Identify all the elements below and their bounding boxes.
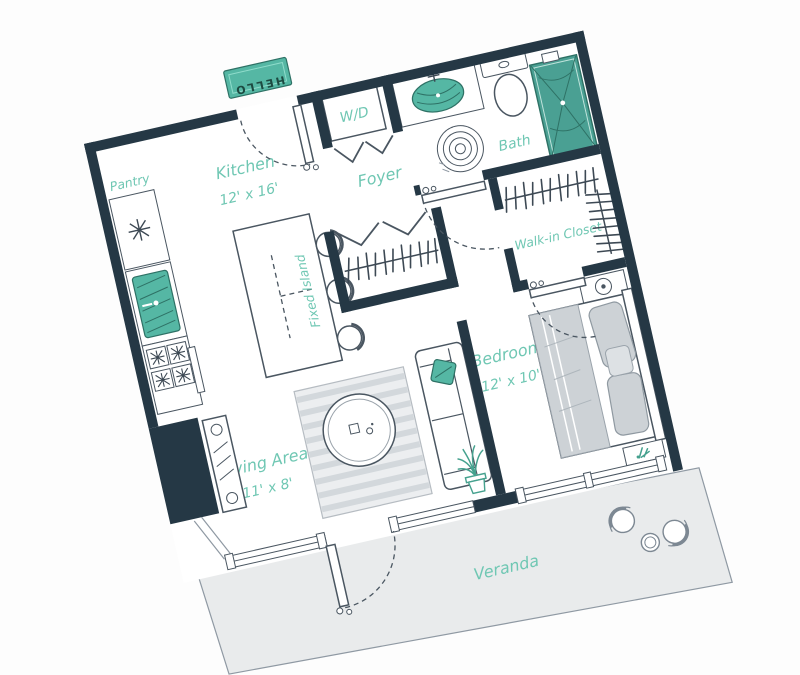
doormat-icon: HELLO [223, 57, 292, 98]
floorplan-canvas: Veranda Kitchen 12' x 16' Pantry [0, 0, 800, 675]
throw-pillow-icon [431, 359, 457, 385]
floorplan: Veranda Kitchen 12' x 16' Pantry [75, 0, 732, 675]
floorplan-page: Veranda Kitchen 12' x 16' Pantry [0, 0, 800, 675]
